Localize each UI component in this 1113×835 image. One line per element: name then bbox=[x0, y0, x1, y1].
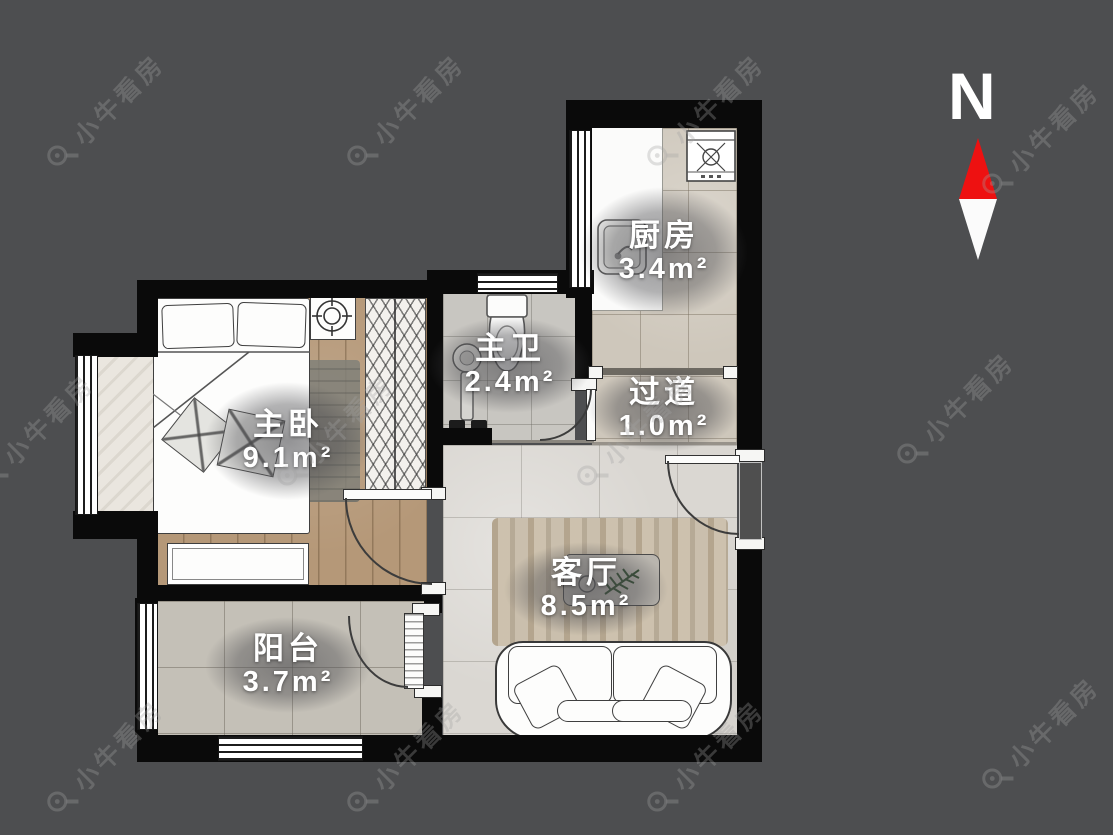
kitchen-area: 3.4m² bbox=[619, 253, 710, 286]
balcony-area: 3.7m² bbox=[243, 666, 334, 699]
watermark-logo-icon bbox=[0, 454, 13, 496]
wall-bay-bottom-cap bbox=[73, 511, 158, 539]
room-label-bedroom: 主卧 9.1m² bbox=[205, 382, 371, 500]
room-label-bathroom: 主卫 2.4m² bbox=[428, 317, 592, 413]
sofa-bolster-right bbox=[612, 700, 692, 722]
bedroom-dresser bbox=[167, 543, 309, 585]
bay-window-glass bbox=[75, 355, 98, 515]
watermark-logo-icon bbox=[40, 134, 82, 176]
wall-kitchen-top bbox=[566, 100, 762, 128]
watermark-logo-icon bbox=[975, 757, 1017, 799]
stove-icon bbox=[686, 130, 736, 182]
room-label-balcony: 阳台 3.7m² bbox=[205, 617, 371, 713]
bathroom-area: 2.4m² bbox=[465, 366, 556, 399]
watermark-logo-icon bbox=[340, 134, 382, 176]
watermark-text: 小牛看房 bbox=[914, 343, 1021, 450]
watermark: 小牛看房 bbox=[973, 668, 1107, 802]
kitchen-name: 厨房 bbox=[629, 218, 699, 254]
wall-bedroom-top bbox=[137, 280, 443, 298]
bathroom-top-window bbox=[477, 273, 558, 293]
hallway-name: 过道 bbox=[629, 375, 699, 411]
wall-bedroom-balcony bbox=[137, 585, 424, 601]
entry-door-leaf-closed bbox=[739, 462, 762, 540]
bathroom-name: 主卫 bbox=[475, 331, 545, 367]
wall-left-upper bbox=[137, 280, 158, 340]
balcony-bottom-window bbox=[218, 736, 363, 761]
bedroom-name: 主卧 bbox=[253, 407, 323, 443]
kitchen-opening-jamb-right bbox=[723, 366, 738, 379]
room-label-hallway: 过道 1.0m² bbox=[588, 366, 740, 452]
watermark-text: 小牛看房 bbox=[64, 45, 171, 152]
watermark-text: 小牛看房 bbox=[999, 668, 1106, 775]
watermark: 小牛看房 bbox=[888, 343, 1022, 477]
wardrobe bbox=[365, 298, 426, 492]
watermark-text: 小牛看房 bbox=[999, 73, 1106, 180]
watermark-logo-icon bbox=[40, 780, 82, 822]
room-label-kitchen: 厨房 3.4m² bbox=[580, 187, 748, 317]
compass-needle-south bbox=[959, 199, 997, 260]
bay-window-sill bbox=[97, 355, 158, 513]
watermark-logo-icon bbox=[340, 780, 382, 822]
ceiling-lamp-icon bbox=[310, 294, 354, 338]
wall-right-lower bbox=[737, 547, 762, 762]
floorplan-canvas: 厨房 3.4m² 主卫 2.4m² 过道 1.0m² 主卧 9.1m² 客厅 8… bbox=[0, 0, 1113, 835]
bedroom-area: 9.1m² bbox=[243, 442, 334, 475]
compass-needle-north bbox=[959, 138, 997, 199]
compass-north-label: N bbox=[948, 58, 996, 134]
watermark: 小牛看房 bbox=[338, 45, 472, 179]
hallway-area: 1.0m² bbox=[619, 410, 710, 443]
wall-bay-top-cap bbox=[73, 333, 158, 357]
wall-bedroom-living bbox=[427, 294, 443, 497]
watermark-logo-icon bbox=[890, 432, 932, 474]
living-name: 客厅 bbox=[551, 555, 621, 591]
watermark-logo-icon bbox=[640, 780, 682, 822]
wall-left-mid bbox=[137, 537, 158, 603]
watermark-text: 小牛看房 bbox=[364, 45, 471, 152]
balcony-name: 阳台 bbox=[253, 631, 323, 667]
room-label-living: 客厅 8.5m² bbox=[504, 542, 668, 636]
balcony-left-window bbox=[137, 603, 158, 730]
living-area: 8.5m² bbox=[541, 590, 632, 623]
wall-bathroom-bottom bbox=[443, 428, 492, 445]
watermark: 小牛看房 bbox=[38, 45, 172, 179]
